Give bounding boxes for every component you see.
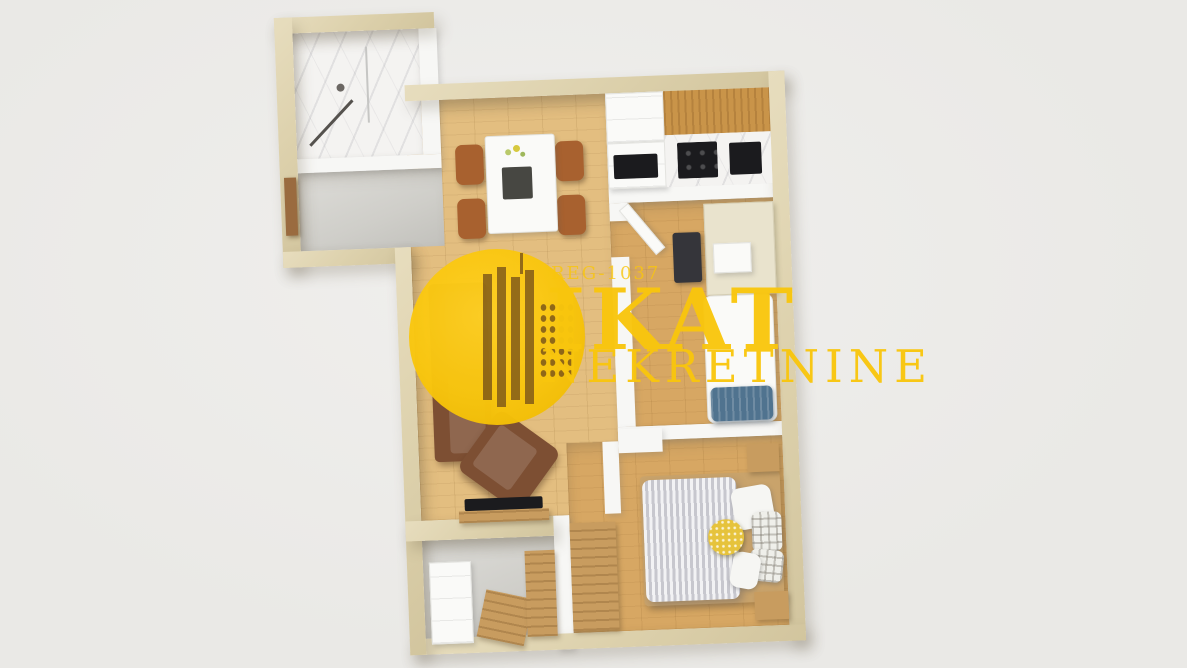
kitchen-wood-counter bbox=[663, 87, 771, 135]
wardrobe bbox=[569, 521, 619, 631]
dining-chair bbox=[457, 198, 487, 239]
table-tray bbox=[502, 166, 533, 199]
nightstand bbox=[747, 443, 780, 472]
floor-plan-render: REG-1037 IKAT NEKRETNINE bbox=[0, 0, 1187, 668]
kitchen-sink bbox=[729, 142, 762, 175]
wardrobe-white-panel bbox=[618, 428, 663, 454]
cooktop bbox=[677, 141, 718, 179]
nightstand bbox=[754, 591, 789, 620]
hallway-floor bbox=[298, 168, 445, 251]
oven bbox=[613, 154, 658, 180]
entry-chair bbox=[477, 589, 534, 646]
entry-door bbox=[284, 177, 298, 235]
dining-chair bbox=[557, 194, 587, 235]
kitchen-upper-cabinets bbox=[605, 91, 665, 143]
bed-pillow-plaid bbox=[751, 511, 783, 552]
entry-bench bbox=[524, 550, 557, 637]
watermark-subtitle: NEKRETNINE bbox=[541, 342, 933, 392]
entry-tall-cabinet bbox=[429, 561, 474, 645]
dining-chair bbox=[555, 140, 585, 181]
desk-device bbox=[713, 242, 752, 273]
dining-chair bbox=[455, 144, 485, 185]
